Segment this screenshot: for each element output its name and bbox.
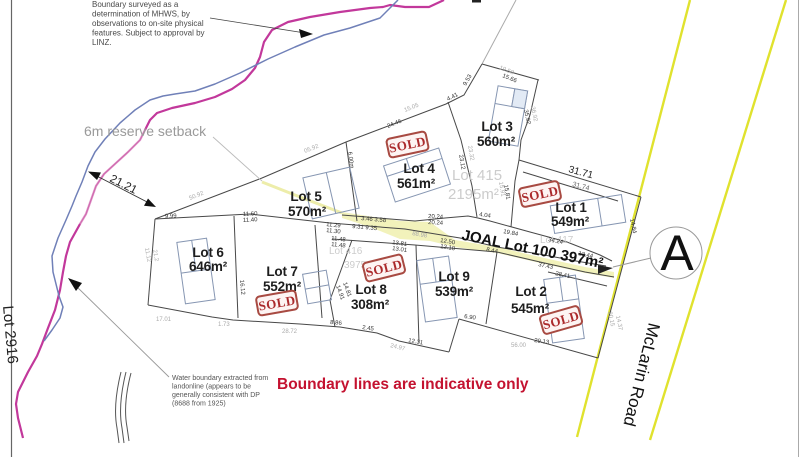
- svg-text:Boundary surveyed as a: Boundary surveyed as a: [92, 0, 179, 9]
- svg-text:20.24: 20.24: [428, 220, 444, 227]
- svg-text:landonline (appears to be: landonline (appears to be: [172, 384, 251, 391]
- svg-text:1.73: 1.73: [218, 322, 230, 328]
- svg-text:Lot 7: Lot 7: [266, 264, 297, 279]
- svg-text:Lot 1: Lot 1: [555, 200, 587, 215]
- svg-text:Lot 4: Lot 4: [403, 161, 435, 176]
- svg-text:Lot 2: Lot 2: [515, 284, 546, 299]
- svg-text:features. Subject to approval: features. Subject to approval by: [92, 29, 205, 38]
- svg-text:observations to on-site physic: observations to on-site physical: [92, 19, 204, 28]
- svg-text:539m²: 539m²: [435, 284, 474, 299]
- svg-text:549m²: 549m²: [551, 214, 590, 229]
- svg-text:generally consistent with DP: generally consistent with DP: [172, 392, 260, 399]
- svg-text:Water boundary extracted from: Water boundary extracted from: [172, 375, 268, 382]
- svg-text:6m reserve setback: 6m reserve setback: [84, 123, 207, 139]
- svg-text:Lot 9: Lot 9: [438, 269, 469, 284]
- svg-text:determination of MHWS, by: determination of MHWS, by: [92, 10, 190, 19]
- svg-text:LINZ.: LINZ.: [92, 38, 112, 47]
- svg-text:28.72: 28.72: [282, 329, 298, 335]
- svg-text:Lot 5: Lot 5: [290, 189, 322, 204]
- svg-text:545m²: 545m²: [511, 301, 550, 316]
- svg-text:A: A: [660, 225, 694, 281]
- svg-text:570m²: 570m²: [288, 204, 327, 219]
- svg-text:Boundary lines are indicative: Boundary lines are indicative only: [277, 376, 529, 393]
- svg-text:Lot 8: Lot 8: [355, 282, 387, 297]
- svg-text:9.99: 9.99: [165, 213, 178, 220]
- svg-text:646m²: 646m²: [189, 259, 228, 274]
- svg-text:Lot 6: Lot 6: [192, 245, 224, 260]
- svg-text:561m²: 561m²: [397, 176, 436, 191]
- svg-text:2195m²: 2195m²: [448, 186, 499, 203]
- svg-text:17.01: 17.01: [156, 317, 172, 323]
- svg-text:11.40: 11.40: [243, 217, 259, 224]
- svg-text:Lot 3: Lot 3: [481, 119, 513, 134]
- svg-text:56.00: 56.00: [511, 343, 527, 349]
- svg-text:Lot 415: Lot 415: [452, 167, 502, 184]
- svg-text:8.86: 8.86: [330, 320, 343, 327]
- svg-text:308m²: 308m²: [351, 297, 390, 312]
- svg-text:(8688 from 1925): (8688 from 1925): [172, 401, 226, 408]
- svg-text:560m²: 560m²: [477, 134, 516, 149]
